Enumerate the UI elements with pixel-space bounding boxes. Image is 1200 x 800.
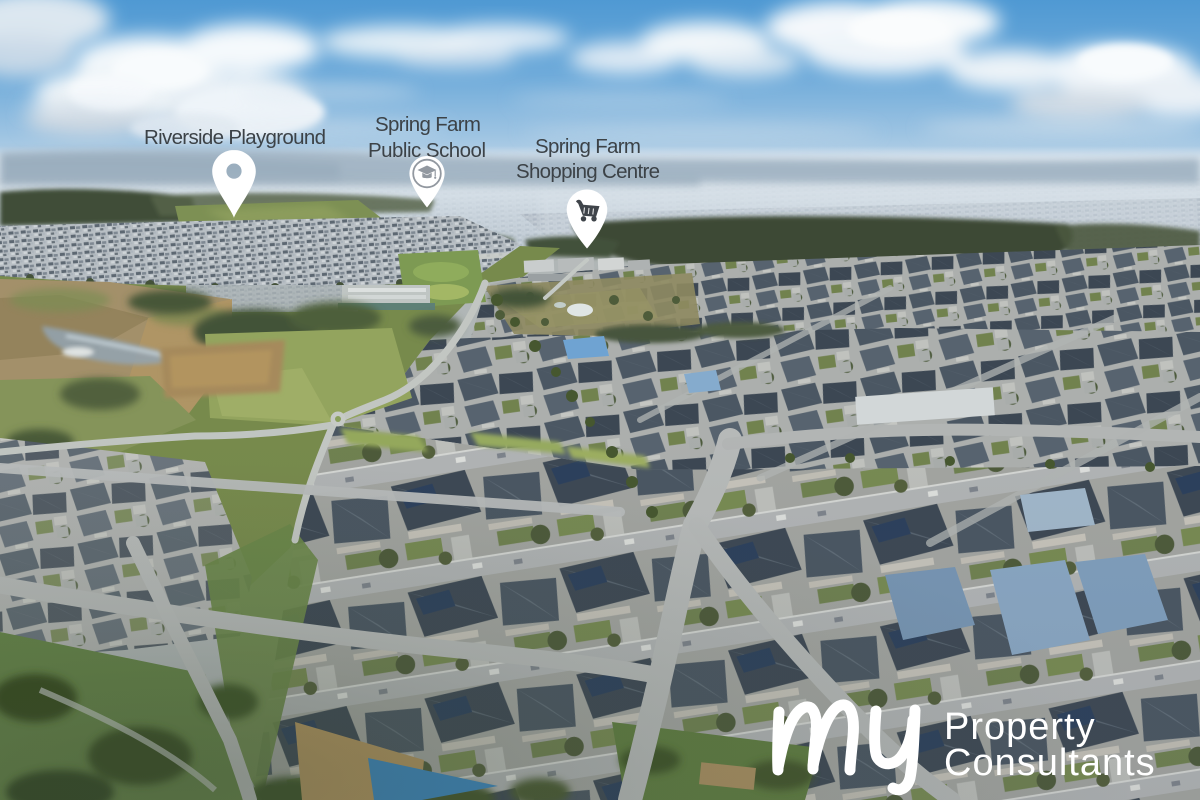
svg-text:Consultants: Consultants — [944, 742, 1156, 784]
svg-text:Riverside Playground: Riverside Playground — [144, 126, 326, 149]
svg-text:Spring Farm: Spring Farm — [375, 113, 481, 136]
svg-text:Spring Farm: Spring Farm — [535, 135, 641, 158]
svg-text:Shopping Centre: Shopping Centre — [516, 160, 660, 183]
